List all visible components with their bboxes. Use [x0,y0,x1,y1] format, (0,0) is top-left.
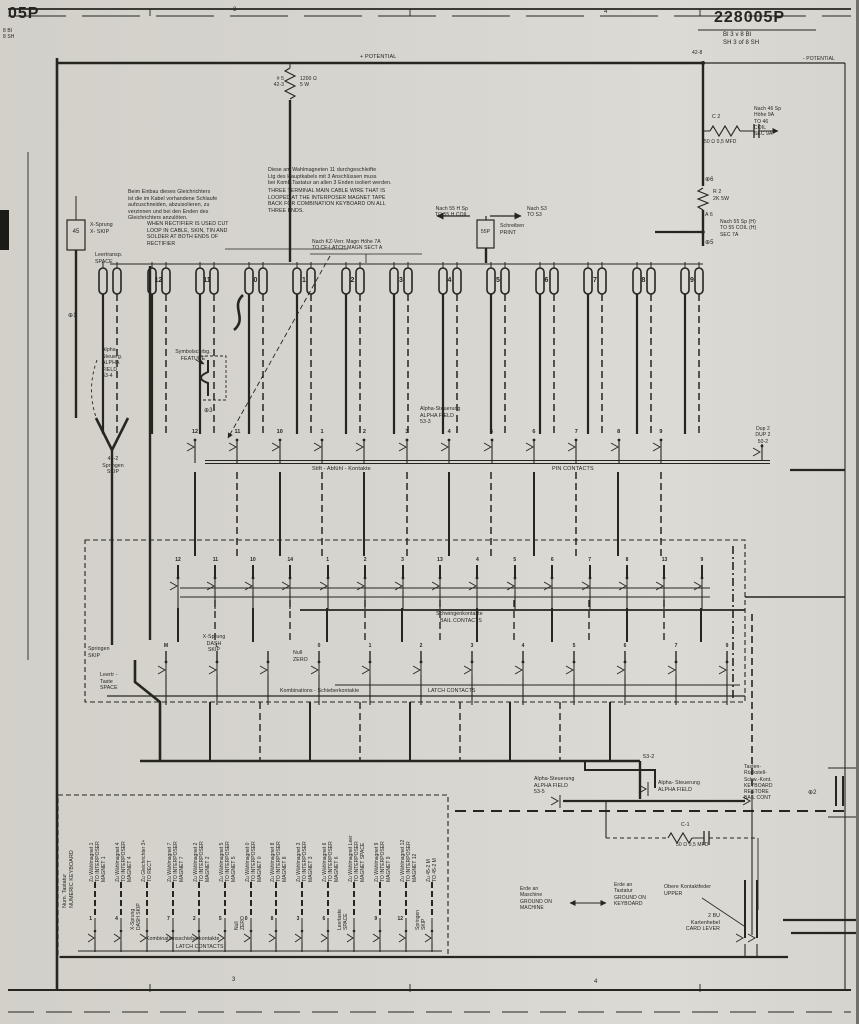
magnet-coil-icon [580,262,610,434]
zone-number: 4 [604,9,607,17]
contact-icon [264,882,289,952]
pin-contact-number: 5 [480,428,504,437]
scan-blob [0,210,9,250]
pin-contacts-label-en: PIN CONTACTS [552,466,594,473]
latch-contact: 2 [409,642,433,705]
kz-latch-callout: Nach KZ-Verr. Magn Höhe 7A TO CF-LATCH M… [312,239,382,252]
to-46-coil-callout: Nach 46 Sp Höhe 9A TO 46 COIL SEC 9A [754,106,781,137]
latch-contact-number: M [154,642,178,651]
contact-icon [83,882,108,952]
bail-contact-number: 2 [354,556,376,565]
latch-contact: 1 [358,642,382,705]
magnet-number: 7 [580,277,610,284]
ref-53-2-label: 53-2 [643,754,654,761]
contact-icon [579,565,601,609]
contact-icon [154,651,178,705]
magnet-number: 3 [386,277,416,284]
bail-contact: 8 [616,556,638,609]
zone-number: 3 [233,7,236,15]
latch-contact-row: M L [154,642,739,705]
bail-contact: 2 [354,556,376,609]
keyboard-magnet-label: Zu Gleichrichter 3+ TO RECT [141,798,153,882]
null-zero-label: Null ZERO [293,650,308,663]
bail-contact: 14 [279,556,301,609]
magnet-number: 6 [532,277,562,284]
dash-skip-label: X-Sprung DASH SKIP [196,634,232,654]
keyboard-magnet-label: Zu Wählmagnet 1 TO INTERPOSER MAGNET 1 [89,798,107,882]
pin-contact-number: 1 [310,428,334,437]
contact-icon [167,565,189,609]
pin-contact: 1 [310,428,334,464]
bail-contacts-label-en: BAIL CONTACTS [440,618,482,625]
magnet-coil-icon [386,262,416,434]
latch-skip-label: Springen SKIP [88,646,110,659]
magnet-coil: 2 [338,262,368,434]
keyboard-magnet-line: Zu Wählmagnet 8 TO INTERPOSER MAGNET 8 8 [264,797,289,952]
keyboard-latch-label-de: Kombinationsschieberkontakte [146,936,219,943]
c1-value: 50 Ω 0,5 MFD [676,842,708,848]
sheet-ref-en: SH 3 of 8 SH [723,40,759,48]
pin-contacts-label-de: Stift - Abfühl - Kontakte [312,466,371,473]
numeric-keyboard-title: Num. Tastatur NUMERIC KEYBOARD [62,796,75,908]
pin-contact-number: 11 [225,428,249,437]
bail-contact-number: 1 [317,556,339,565]
latch-contact-number: 0 [307,642,331,651]
pin-contact-number: 12 [183,428,207,437]
drawing-number-left: 05P [8,4,39,24]
latch-contact [256,642,280,705]
bail-contact-number: 3 [392,556,414,565]
contact-icon [437,437,461,463]
pin-contact: 7 [564,428,588,464]
potential-label-right: - POTENTIAL [803,56,835,62]
contact-icon [205,651,229,705]
magnet-number: 11 [192,277,222,284]
bail-contact: 4 [466,556,488,609]
space-label: Leertransp. SPACE [95,252,122,265]
latch-contact-number: 1 [358,642,382,651]
bail-contact: 10 [242,556,264,609]
contact-icon [239,882,264,952]
keyboard-magnet-label: Zu Wählmagnet 0 TO INTERPOSER MAGNET 0 [245,798,263,882]
node-5: ⊕5 [705,240,714,248]
pin-contact-row: 12 11 10 [183,428,673,464]
magnet-coil: 0 [241,262,271,434]
latch-contact-number [256,642,280,651]
magnet-coil: 3 [386,262,416,434]
node-1: ⊕1 [68,313,77,321]
contact-icon [715,651,739,705]
contact-icon [354,565,376,609]
magnet-coil: 9 [677,262,707,434]
alpha-field-53-3-label: Alpha-Steuerung ALPHA FIELD 53-3 [420,406,460,426]
to-55h-coil-callout: Nach 55 H Sp TO 55 H COIL [420,206,468,219]
bail-contact-number: 13 [429,556,451,565]
contact-icon [466,565,488,609]
bail-contact-number: 8 [616,556,638,565]
keyboard-magnet-label: Zu Wählmagnet 4 TO INTERPOSER MAGNET 4 [115,798,133,882]
alpha-field-53-4-label: Alpha- Steuerg. ALPHA FIELD 53-4 [102,347,122,380]
keyboard-magnet-label: Zu Wählmagnet 7 TO INTERPOSER MAGNET 7 [167,798,185,882]
magnet-coil: 6 [532,262,562,434]
node-2: ⊕2 [808,790,817,798]
contact-icon [480,437,504,463]
pin-contact-number: 3 [395,428,419,437]
magnet-coil-icon [241,262,271,434]
bail-contact: 7 [579,556,601,609]
pin-contact: 10 [268,428,292,464]
keyboard-magnet-line: Zu Wählmagnet 2 TO INTERPOSER MAGNET 2 2 [187,797,212,952]
contact-icon [653,565,675,609]
contact-icon [562,651,586,705]
bail-contact-number: 5 [504,556,526,565]
magnet-coil-icon [483,262,513,434]
x-skip-label: X-Sprung X- SKIP [90,222,113,235]
pin-contact-number: 8 [607,428,631,437]
keyboard-magnet-label: Zu Wählmagnet 3 TO INTERPOSER MAGNET 3 [296,798,314,882]
to-s3-callout: Nach S3 TO S3 [527,206,547,219]
magnet-number: 4 [435,277,465,284]
upper-contact-label: Obere Kontaktfeder UPPER [664,884,711,897]
magnet-coil: 5 [483,262,513,434]
relay-45-label: 45 [67,229,85,237]
pin-contact: 5 [480,428,504,464]
feature-label: Symbolschrbg. FEATURE [170,349,216,362]
latch-contact: 7 [664,642,688,705]
latch-contact: 5 [562,642,586,705]
contact-icon [307,651,331,705]
bail-contact-number: 12 [167,556,189,565]
keyboard-magnet-label: Zu Wählmagnet 8 TO INTERPOSER MAGNET 8 [270,798,288,882]
pin-contact-number: 7 [564,428,588,437]
print-label: Schreiben PRINT [500,223,524,236]
resistor-ref: # 5 42-3 [256,76,284,89]
node-3: ⊕3 [204,408,213,416]
bail-contact-number: 4 [466,556,488,565]
bail-contact: 12 [167,556,189,609]
contact-icon [256,651,280,705]
contact-icon [564,437,588,463]
keyboard-magnet-label: Zu Wählmagnet 5 TO INTERPOSER MAGNET 5 [219,798,237,882]
contact-icon [616,565,638,609]
bail-contact-row: 12 11 [167,556,713,609]
keyboard-magnet-label: Zu Wählmagnet 9 TO INTERPOSER MAGNET 9 [374,798,392,882]
zone-number: 3 [232,977,235,985]
keyboard-magnet-line: Zu Wählmagnet 0 TO INTERPOSER MAGNET 0 N… [239,797,264,952]
ground-keyboard-label: Erde an Tastatur GROUND ON KEYBOARD [614,882,646,907]
magnet-number: 9 [677,277,707,284]
interposer-magnet-row: 12 11 [95,262,707,434]
drawing-number: 228005P [714,8,785,28]
cable-note-de: Diese am Wahlmagneten 11 durchgeschleift… [268,167,392,187]
contact-icon [342,882,367,952]
print-relay-label: 55P [477,229,494,235]
keyboard-magnet-line: Zu Wählmagnet 3 TO INTERPOSER MAGNET 3 3 [290,797,315,952]
contact-icon [204,565,226,609]
pin-contact-number: 6 [522,428,546,437]
pin-contact: 2 [352,428,376,464]
magnet-number: 8 [629,277,659,284]
latch-contacts-label-en: LATCH CONTACTS [428,688,476,695]
keyboard-magnet-label: Zu Wählmagnet 2 TO INTERPOSER MAGNET 2 [193,798,211,882]
c2-label: C 2 [712,114,720,121]
pin-contact: 8 [607,428,631,464]
to-55-coil-callout: Nach 55 Sp (H) TO 55 COIL (H) SEC 7A [720,219,756,238]
node-6: ⊕6 [705,177,714,185]
magnet-number: 0 [241,277,271,284]
contact-icon [607,437,631,463]
pin-contact: 4 [437,428,461,464]
latch-contacts-label-de: Kombinations - Schieberkontakte [280,688,359,695]
contact-icon [290,882,315,952]
keyboard-magnet-label: Zu Wählmagnet 12 TO INTERPOSER MAGNET 12 [400,798,418,882]
alpha-field-53-2-label: Alpha- Steuerung ALPHA FIELD [658,780,700,793]
card-lever-label: 2 BU Kartenhebel CARD LEVER [658,913,720,933]
contact-icon [613,651,637,705]
contact-icon [242,565,264,609]
bail-contact: 3 [392,556,414,609]
bail-contact-number: 13 [653,556,675,565]
sheet-ref-de: Bl 3 v 8 Bl [723,32,751,40]
contact-icon [541,565,563,609]
bail-contact-number: 6 [541,556,563,565]
magnet-number: 5 [483,277,513,284]
rectifier-note-en: WHEN RECTIFIER IS USED CUT LOOP IN CABLE… [147,221,229,247]
rectifier-note-de: Beim Einbau dieses Gleichrichters ist di… [128,189,217,222]
bail-contact: 11 [204,556,226,609]
c2-value: 50 Ω 0,5 MFD [704,139,736,145]
keyboard-magnet-line: Zu Wählmagnet 9 TO INTERPOSER MAGNET 9 9 [368,797,393,952]
latch-space-label: Leertr - Taste SPACE [100,672,118,692]
magnet-coil: 7 [580,262,610,434]
skip-45-2-label: 45-2 Springen SKIP [96,456,130,476]
contact-icon [420,882,445,952]
r2-label: R 2 2K 5W [713,189,729,202]
bail-contacts-label-de: Schwingenkontakte [436,611,483,618]
potential-label-top: + POTENTIAL [360,54,396,61]
bail-contact: 13 [653,556,675,609]
sheet-ref-left: 8 Bl 8 SH [3,28,15,41]
magnet-coil-icon [629,262,659,434]
node-42-8: 42-8 [692,50,702,56]
contact-icon [268,437,292,463]
keyboard-magnet-label: Zu 45-2 M TO 45-2 M [426,798,438,882]
contact-icon [279,565,301,609]
latch-contact-number: 5 [562,642,586,651]
contact-icon [225,437,249,463]
alpha-field-53-5-label: Alpha-Steuerung ALPHA FIELD 53-5 [534,776,574,796]
keyboard-magnet-line: Zu 45-2 M TO 45-2 M Springen SKIP [420,797,445,952]
magnet-number: 12 [144,277,174,284]
contact-icon [368,882,393,952]
contact-icon [429,565,451,609]
pin-contact-number: 9 [649,428,673,437]
ground-machine-label: Erde an Maschine GROUND ON MACHINE [520,886,552,911]
magnet-coil-icon [144,262,174,434]
pin-contact-number: 4 [437,428,461,437]
bail-contact-number: 7 [579,556,601,565]
cable-note-en: THREE TERMINAL MAIN CABLE WIRE THAT IS L… [268,188,386,214]
bail-contact: 13 [429,556,451,609]
contact-icon [649,437,673,463]
keyboard-magnet-line: Zu Wählmagnet Leer TO INTERPOSER MAGNET … [342,797,367,952]
latch-contact: 4 [511,642,535,705]
latch-contact: 9 [715,642,739,705]
bail-contact-number: 10 [242,556,264,565]
contact-icon [522,437,546,463]
latch-contact: M [154,642,178,705]
keyboard-magnet-label: Zu Wählmagnet 6 TO INTERPOSER MAGNET 6 [322,798,340,882]
c1-label: C-1 [681,822,690,829]
latch-contact-number: 2 [409,642,433,651]
pin-contact: 12 [183,428,207,464]
contact-icon [504,565,526,609]
contact-icon [392,565,414,609]
latch-contact: 6 [613,642,637,705]
keyboard-magnet-row: Zu Wählmagnet 1 TO INTERPOSER MAGNET 1 1… [83,797,445,952]
pin-contact: 11 [225,428,249,464]
bail-contact: 1 [317,556,339,609]
magnet-coil: 12 [144,262,174,434]
node-a6: A 6 [705,212,713,219]
dup-2-label: Dup 2 DUP 2 50-2 [748,426,778,445]
pin-contact-number: 2 [352,428,376,437]
keyboard-magnet-line: Zu Wählmagnet 1 TO INTERPOSER MAGNET 1 1 [83,797,108,952]
contact-icon [183,437,207,463]
magnet-coil-icon [289,262,319,434]
latch-contact-number: 7 [664,642,688,651]
magnet-coil: 1 [289,262,319,434]
keyboard-restore-label: Tasten- Rückstell- Schw.-Kont. KEYBOARD … [744,764,773,802]
latch-contact: 0 [307,642,331,705]
contact-icon [358,651,382,705]
magnet-coil-icon [532,262,562,434]
magnet-number: 2 [338,277,368,284]
keyboard-magnet-label: Zu Wählmagnet Leer TO INTERPOSER MAGNET … [348,798,366,882]
magnet-coil-icon [338,262,368,434]
bail-contact: 5 [504,556,526,609]
latch-contact-number: 9 [715,642,739,651]
keyboard-magnet-line: Zu Gleichrichter 3+ TO RECT X-Sprung DAS… [135,797,160,952]
contact-icon [511,651,535,705]
contact-icon [691,565,713,609]
contact-icon [460,651,484,705]
contact-icon [310,437,334,463]
schematic-sheet: 12 11 [0,0,859,1024]
latch-contact-number: 4 [511,642,535,651]
magnet-coil: 8 [629,262,659,434]
magnet-number: 1 [289,277,319,284]
resistor-value: 1200 Ω 5 W [300,76,317,89]
keyboard-latch-label-en: LATCH CONTACTS [176,944,224,951]
bail-contact: 9 [691,556,713,609]
pin-contact: 6 [522,428,546,464]
bail-contact-number: 11 [204,556,226,565]
zone-number: 4 [594,979,597,987]
contact-icon [395,437,419,463]
pin-contact: 9 [649,428,673,464]
latch-contact-number: 3 [460,642,484,651]
contact-icon [664,651,688,705]
bail-contact: 6 [541,556,563,609]
latch-contact: 3 [460,642,484,705]
contact-icon [317,565,339,609]
latch-contact-number: 6 [613,642,637,651]
contact-icon [409,651,433,705]
keyboard-magnet-line: Zu Wählmagnet 7 TO INTERPOSER MAGNET 7 7 [161,797,186,952]
pin-contact-number: 10 [268,428,292,437]
bail-contact-number: 9 [691,556,713,565]
contact-icon [352,437,376,463]
bail-contact-number: 14 [279,556,301,565]
pin-contact: 3 [395,428,419,464]
magnet-coil-icon [677,262,707,434]
